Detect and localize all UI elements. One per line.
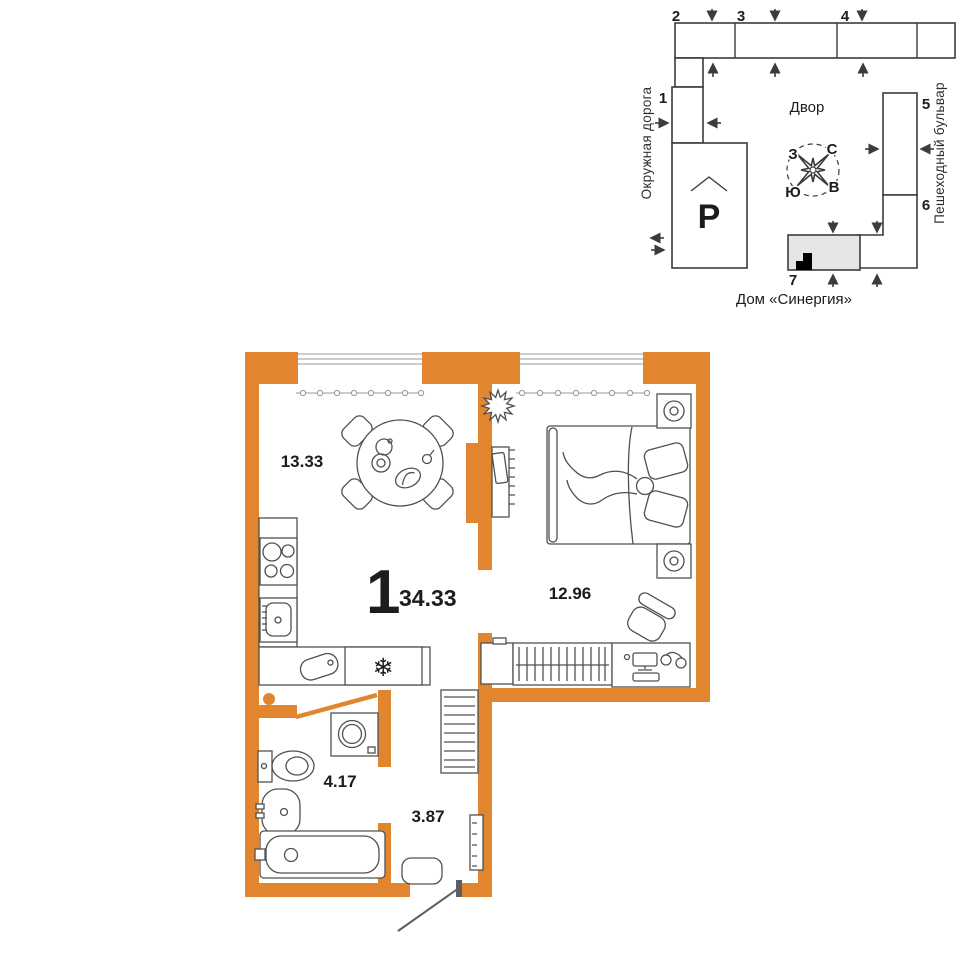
hall-closet	[441, 690, 478, 773]
building-5-number: 5	[922, 96, 930, 113]
wall-bottom-left	[245, 883, 410, 897]
bedroom-area-label: 12.96	[549, 584, 592, 603]
window-kitchen	[298, 354, 422, 364]
parking-label: P	[698, 198, 721, 236]
bathroom-area-label: 4.17	[323, 772, 356, 791]
building-row-top	[675, 23, 955, 58]
kitchen-sink	[260, 598, 297, 642]
nightstand-bottom	[657, 544, 691, 578]
washing-machine	[331, 713, 378, 756]
desk	[612, 643, 690, 687]
wall-pier-middle	[422, 352, 520, 384]
parking-building: P	[672, 143, 747, 268]
compass-north: С	[827, 141, 838, 158]
building-4-number: 4	[841, 8, 850, 25]
bath-faucet	[255, 849, 265, 860]
wall-partition-jog	[466, 443, 492, 523]
wall-right	[696, 352, 710, 702]
window-bedroom	[520, 354, 643, 364]
keyboard	[633, 673, 659, 681]
radiators	[296, 390, 650, 395]
compass-south: Ю	[785, 184, 800, 201]
monitor	[633, 653, 657, 666]
wardrobe	[481, 638, 612, 685]
total-area-label: 34.33	[399, 585, 457, 611]
building-2-wing	[675, 58, 703, 87]
building-1	[672, 87, 703, 143]
hallway-area-label: 3.87	[411, 807, 444, 826]
stove	[260, 538, 297, 585]
building-3-number: 3	[737, 8, 745, 25]
pouf	[402, 858, 442, 884]
compass: З С Ю В	[785, 141, 839, 201]
bathroom-sink	[256, 789, 300, 835]
plumbing-riser-dot	[263, 693, 275, 705]
dining-table	[339, 413, 456, 512]
office-chair	[623, 591, 678, 646]
road-direction-arrows	[651, 238, 664, 250]
wall-bathroom-right-upper	[378, 690, 391, 767]
apartment-floor-plan: ❄	[245, 352, 710, 931]
rooms-count-label: 1	[366, 558, 400, 627]
compass-east: В	[829, 179, 840, 196]
shoe-rack	[470, 815, 483, 870]
kitchen-area-label: 13.33	[281, 452, 324, 471]
building-5	[883, 93, 917, 195]
nightstand-top	[657, 394, 691, 428]
fridge: ❄	[345, 647, 422, 685]
compass-west: З	[788, 146, 797, 163]
tv-stand	[492, 447, 515, 517]
bedroom	[481, 390, 691, 687]
plan-canvas: P З С Ю В	[0, 0, 960, 960]
bed	[547, 426, 690, 544]
cabinet	[481, 643, 513, 684]
house-name-label: Дом «Синергия»	[736, 291, 852, 308]
building-2-number: 2	[672, 8, 680, 25]
building-1-number: 1	[659, 90, 667, 107]
bed-headboard	[549, 428, 557, 542]
wall-pier-left	[245, 352, 298, 384]
site-plan: P З С Ю В	[639, 8, 955, 308]
courtyard-label: Двор	[790, 99, 825, 116]
bathroom	[255, 713, 385, 878]
street-left-label: Окружная дорога	[639, 86, 654, 199]
floor-plan-page: P З С Ю В	[0, 0, 960, 960]
bathtub	[255, 831, 385, 878]
wall-bathroom-top	[259, 705, 297, 718]
building-6	[857, 195, 917, 268]
wall-bedroom-bottom	[478, 688, 710, 702]
building-6-number: 6	[922, 197, 930, 214]
street-right-label: Пешеходный бульвар	[932, 82, 947, 224]
toilet	[258, 751, 314, 782]
fridge-snowflake-icon: ❄	[373, 654, 394, 682]
building-7-number: 7	[789, 272, 797, 289]
